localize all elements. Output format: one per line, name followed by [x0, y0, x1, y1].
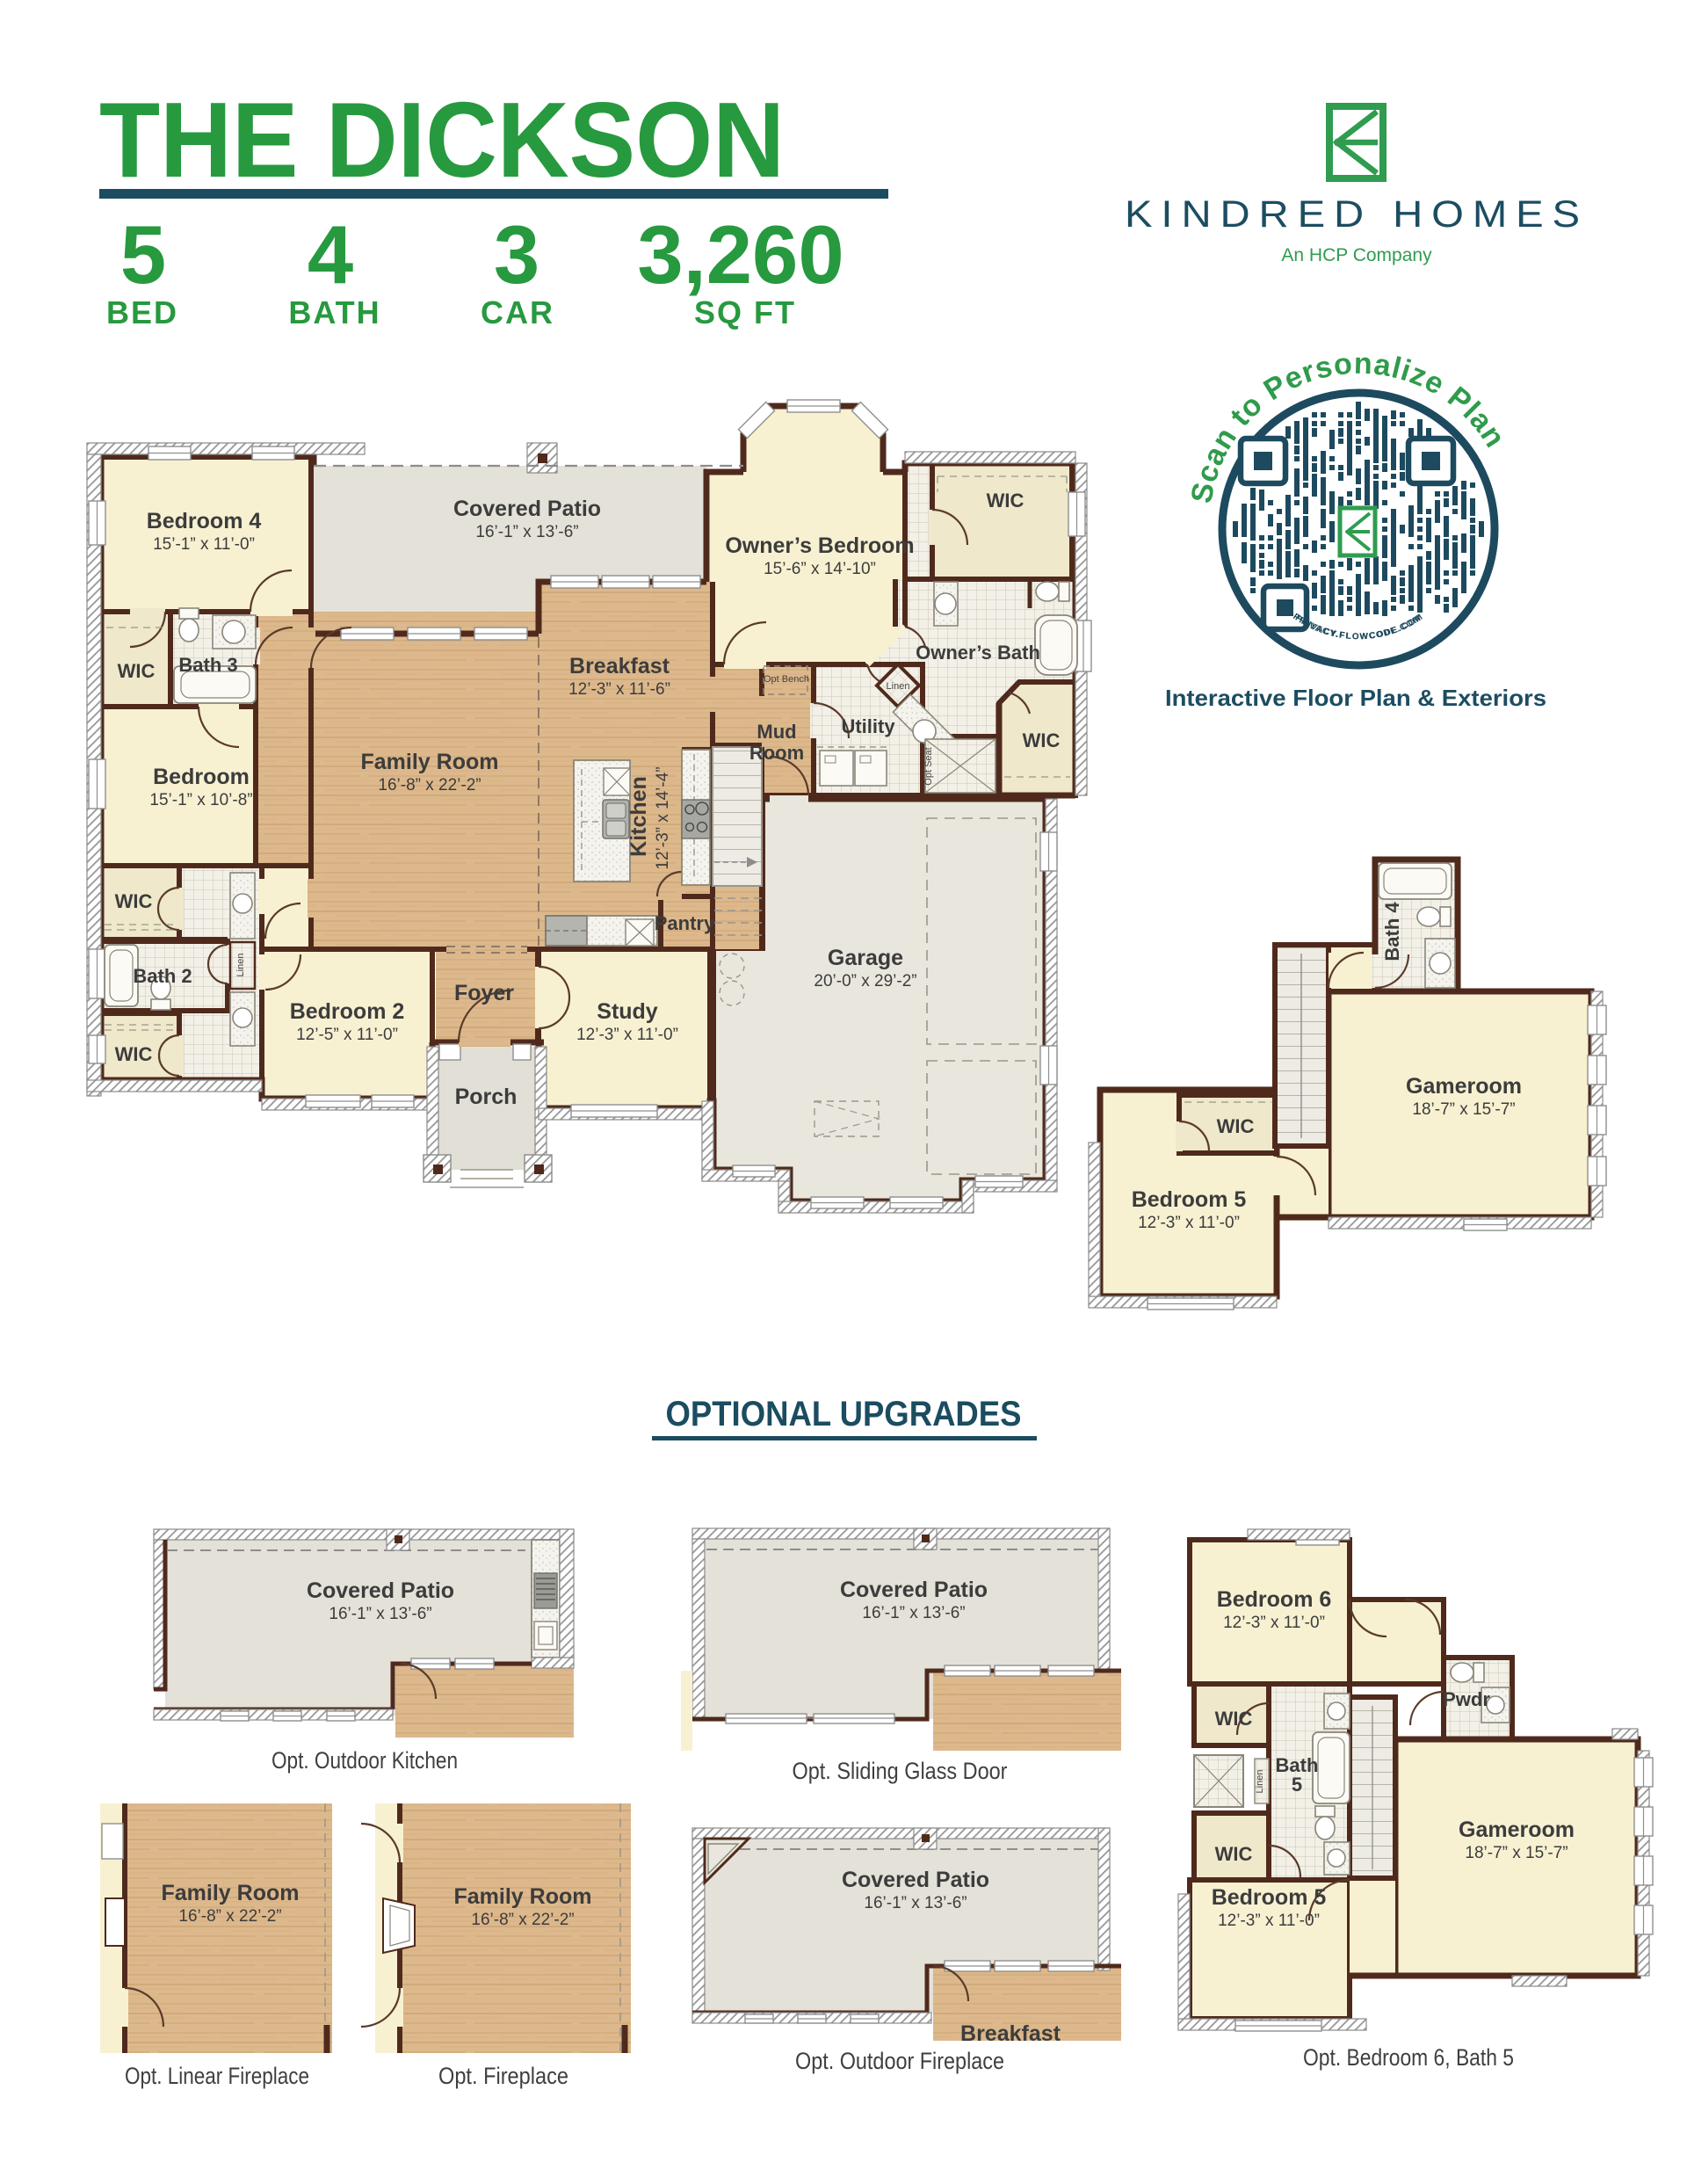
svg-text:WIC: WIC — [1023, 729, 1061, 751]
svg-text:Bedroom 5: Bedroom 5 — [1212, 1885, 1327, 1910]
svg-text:16’-8” x 22’-2”: 16’-8” x 22’-2” — [471, 1911, 574, 1929]
svg-text:Opt. Fireplace: Opt. Fireplace — [438, 2063, 568, 2089]
svg-text:12’-5” x 11’-0”: 12’-5” x 11’-0” — [296, 1026, 398, 1044]
svg-text:Mud: Mud — [757, 721, 796, 743]
svg-text:Kitchen: Kitchen — [626, 776, 651, 857]
svg-text:12’-3” x 11’-6”: 12’-3” x 11’-6” — [568, 680, 670, 699]
svg-text:Opt. Outdoor Fireplace: Opt. Outdoor Fireplace — [795, 2048, 1004, 2074]
svg-text:Owner’s Bedroom: Owner’s Bedroom — [725, 533, 914, 558]
svg-text:Room: Room — [749, 742, 804, 764]
svg-text:Interactive Floor Plan & Exter: Interactive Floor Plan & Exteriors — [1165, 685, 1546, 711]
svg-text:16’-8” x 22’-2”: 16’-8” x 22’-2” — [178, 1907, 281, 1926]
svg-text:Family Room: Family Room — [454, 1884, 592, 1909]
svg-text:Bedroom 2: Bedroom 2 — [290, 999, 405, 1024]
svg-text:Covered Patio: Covered Patio — [840, 1578, 988, 1602]
svg-text:WIC: WIC — [118, 660, 156, 682]
svg-text:SQ FT: SQ FT — [694, 294, 796, 330]
svg-text:Opt. Bedroom 6, Bath 5: Opt. Bedroom 6, Bath 5 — [1303, 2044, 1514, 2071]
svg-text:Study: Study — [597, 999, 658, 1024]
svg-text:Opt. Sliding Glass Door: Opt. Sliding Glass Door — [793, 1758, 1008, 1784]
svg-text:15’-6” x 14’-10”: 15’-6” x 14’-10” — [764, 560, 876, 578]
svg-text:Covered Patio: Covered Patio — [307, 1578, 454, 1603]
svg-text:Bedroom: Bedroom — [153, 765, 250, 789]
svg-text:16’-1” x 13’-6”: 16’-1” x 13’-6” — [864, 1894, 967, 1912]
svg-text:WIC: WIC — [115, 1043, 153, 1065]
svg-text:18’-7” x 15’-7”: 18’-7” x 15’-7” — [1465, 1844, 1568, 1862]
svg-text:3: 3 — [494, 208, 539, 301]
svg-text:Owner’s Bath: Owner’s Bath — [916, 642, 1040, 664]
svg-text:4: 4 — [308, 208, 353, 301]
svg-text:Family Room: Family Room — [361, 750, 499, 774]
svg-text:12’-3” x 14’-4”: 12’-3” x 14’-4” — [654, 766, 672, 869]
svg-text:BATH: BATH — [288, 294, 380, 330]
svg-text:16’-1” x 13’-6”: 16’-1” x 13’-6” — [475, 523, 578, 541]
svg-text:3,260: 3,260 — [637, 208, 843, 301]
svg-text:Utility: Utility — [841, 715, 895, 737]
svg-text:Bedroom 6: Bedroom 6 — [1217, 1587, 1332, 1612]
svg-text:Gameroom: Gameroom — [1406, 1074, 1522, 1099]
svg-text:Foyer: Foyer — [454, 981, 514, 1005]
svg-text:Bath 3: Bath 3 — [178, 654, 237, 676]
svg-text:Opt Seat: Opt Seat — [923, 747, 934, 785]
svg-text:Linen: Linen — [1255, 1770, 1265, 1794]
svg-text:12’-3” x 11’-0”: 12’-3” x 11’-0” — [1138, 1214, 1240, 1232]
svg-text:16’-8” x 22’-2”: 16’-8” x 22’-2” — [378, 776, 481, 795]
svg-text:KINDRED HOMES: KINDRED HOMES — [1125, 193, 1589, 236]
svg-text:Opt Bench: Opt Bench — [764, 674, 809, 685]
svg-text:5: 5 — [1292, 1774, 1302, 1796]
svg-text:WIC: WIC — [1217, 1115, 1255, 1137]
svg-text:Breakfast: Breakfast — [960, 2021, 1061, 2046]
svg-text:Bedroom 5: Bedroom 5 — [1132, 1187, 1247, 1212]
svg-text:CAR: CAR — [481, 294, 554, 330]
svg-text:Bath 4: Bath 4 — [1381, 902, 1403, 961]
svg-text:12’-3” x 11’-0”: 12’-3” x 11’-0” — [1218, 1912, 1320, 1930]
svg-text:12’-3” x 11’-0”: 12’-3” x 11’-0” — [576, 1026, 678, 1044]
svg-text:THE DICKSON: THE DICKSON — [99, 80, 785, 200]
svg-text:An HCP Company: An HCP Company — [1281, 245, 1432, 265]
svg-text:15’-1” x 11’-0”: 15’-1” x 11’-0” — [153, 535, 255, 554]
svg-text:Gameroom: Gameroom — [1459, 1818, 1575, 1842]
svg-text:Bath 2: Bath 2 — [133, 965, 192, 987]
svg-text:Breakfast: Breakfast — [569, 654, 670, 678]
svg-text:Family Room: Family Room — [162, 1881, 300, 1905]
svg-text:18’-7” x 15’-7”: 18’-7” x 15’-7” — [1412, 1100, 1515, 1119]
svg-text:Opt. Linear Fireplace: Opt. Linear Fireplace — [125, 2063, 309, 2089]
svg-text:Garage: Garage — [828, 946, 903, 970]
svg-text:Porch: Porch — [455, 1085, 518, 1109]
svg-text:Covered Patio: Covered Patio — [842, 1868, 989, 1892]
svg-text:Linen: Linen — [887, 681, 910, 692]
svg-text:16’-1” x 13’-6”: 16’-1” x 13’-6” — [862, 1604, 965, 1622]
svg-text:12’-3” x 11’-0”: 12’-3” x 11’-0” — [1223, 1614, 1325, 1632]
svg-text:Pantry: Pantry — [655, 912, 715, 934]
svg-text:BED: BED — [106, 294, 178, 330]
svg-text:20’-0” x 29’-2”: 20’-0” x 29’-2” — [814, 972, 916, 990]
svg-text:5: 5 — [120, 208, 166, 301]
svg-text:WIC: WIC — [1215, 1708, 1253, 1730]
svg-text:16’-1” x 13’-6”: 16’-1” x 13’-6” — [329, 1605, 431, 1623]
svg-text:Opt. Outdoor Kitchen: Opt. Outdoor Kitchen — [272, 1747, 458, 1774]
svg-text:Linen: Linen — [235, 954, 246, 977]
svg-text:WIC: WIC — [1215, 1843, 1253, 1865]
svg-text:Pwdr: Pwdr — [1443, 1688, 1490, 1710]
svg-text:Covered Patio: Covered Patio — [453, 497, 601, 521]
svg-text:OPTIONAL UPGRADES: OPTIONAL UPGRADES — [666, 1395, 1022, 1433]
svg-text:WIC: WIC — [987, 490, 1025, 512]
svg-text:Bedroom 4: Bedroom 4 — [147, 509, 262, 533]
svg-text:15’-1” x 10’-8”: 15’-1” x 10’-8” — [149, 791, 252, 809]
svg-text:WIC: WIC — [115, 890, 153, 912]
